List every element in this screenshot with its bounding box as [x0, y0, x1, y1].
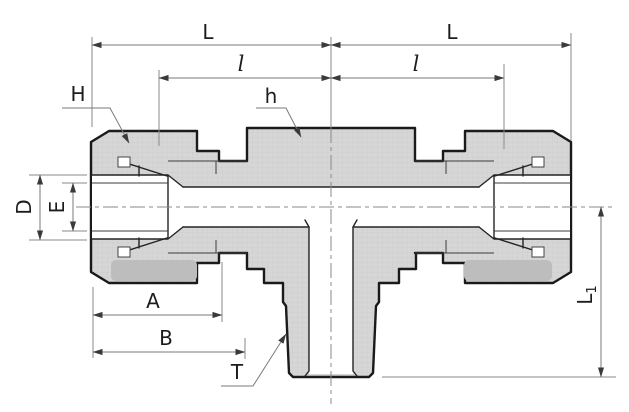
- dim-label-L-right: L: [446, 20, 458, 44]
- dim-label-A: A: [146, 289, 160, 313]
- dim-label-T: T: [230, 360, 244, 384]
- dim-label-l-left: l: [238, 52, 245, 76]
- dim-label-B: B: [159, 326, 173, 350]
- left-nut-shadow-band: [111, 260, 197, 281]
- drawing-page: L L l l H h: [0, 0, 629, 412]
- dim-label-L-left: L: [202, 20, 214, 44]
- dim-L-left: L: [92, 20, 331, 127]
- dim-T: T: [221, 334, 286, 386]
- right-nut-shadow-band: [464, 260, 552, 281]
- dim-label-l-right: l: [413, 52, 420, 76]
- dim-label-L1-sub: 1: [585, 285, 600, 293]
- dim-label-D: D: [12, 199, 36, 214]
- dim-B: B: [93, 326, 245, 359]
- left-top-gap-notch: [118, 157, 130, 167]
- dim-label-H: H: [70, 82, 85, 106]
- right-bottom-gap-notch: [532, 247, 544, 257]
- dim-L-right: L: [331, 20, 571, 141]
- bore-right-socket: [494, 175, 570, 239]
- dim-label-L1: L1: [573, 285, 600, 304]
- dim-label-E: E: [45, 201, 69, 214]
- dim-label-h: h: [265, 84, 278, 108]
- fitting-drawing-canvas: L L l l H h: [0, 0, 629, 412]
- right-top-gap-notch: [532, 157, 544, 167]
- left-bottom-gap-notch: [118, 247, 130, 257]
